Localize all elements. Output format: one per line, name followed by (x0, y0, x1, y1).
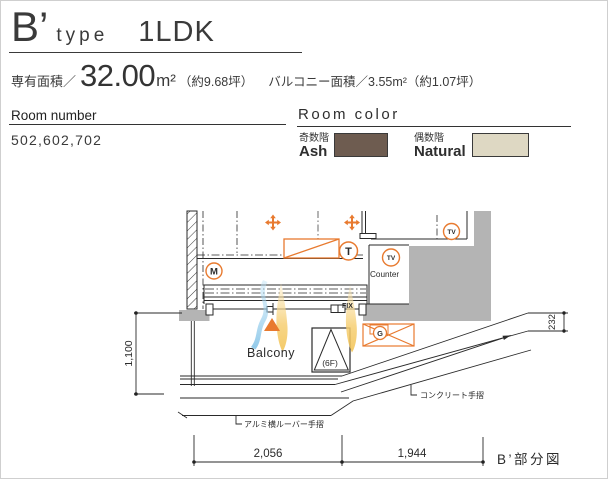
phone-outlet-icon: T (340, 242, 358, 260)
dim-widths: 2,056 1,944 (192, 435, 485, 466)
louver-leader (236, 416, 242, 425)
balcony-floor-lines (178, 376, 349, 418)
concrete-leader (411, 385, 417, 395)
louver-label: アルミ横ルーバー手摺 (244, 419, 324, 429)
evacuation-hatch: (6F) (312, 328, 350, 372)
svg-text:232: 232 (547, 314, 558, 330)
meter-icon: M (206, 263, 222, 279)
svg-text:TV: TV (447, 229, 456, 236)
balcony-wall-fill (179, 310, 210, 321)
dim-handrail-232: 232 (528, 311, 568, 332)
dim-height-1100: 1,100 (123, 311, 182, 396)
tv-outlet-icon-2: TV (444, 224, 460, 240)
hatched-wall (187, 211, 197, 309)
concrete-label: コンクリート手摺 (420, 390, 484, 400)
svg-text:TV: TV (387, 255, 396, 262)
ceiling-light-icon-2 (344, 215, 360, 231)
handrail-diagonals (331, 313, 531, 416)
window-track (204, 285, 367, 304)
dim-width-left: 2,056 (254, 448, 283, 460)
svg-text:T: T (345, 246, 352, 258)
balcony-label: Balcony (247, 346, 295, 360)
svg-text:G: G (377, 329, 383, 338)
counter-label: Counter (370, 270, 399, 279)
fix-label: FIX (342, 303, 353, 310)
slope-arrowhead (503, 335, 511, 340)
tv-outlet-icon-1: TV (383, 249, 400, 266)
dim-width-right: 1,944 (398, 448, 427, 460)
floorplan-drawing: (6F) T M TV (1, 1, 608, 479)
gas-meter-symbol: G (363, 324, 414, 346)
plan-caption: B’部分図 (497, 452, 562, 467)
svg-text:1,100: 1,100 (123, 340, 135, 366)
evac-floor-label: (6F) (322, 358, 338, 368)
ac-unit-symbol (284, 239, 339, 258)
ceiling-light-icon-1 (265, 215, 281, 231)
svg-text:M: M (210, 267, 218, 278)
floorplan-page: B’ type 1LDK 専有面積／ 32.00 m² （約9.68坪） バルコ… (0, 0, 608, 479)
